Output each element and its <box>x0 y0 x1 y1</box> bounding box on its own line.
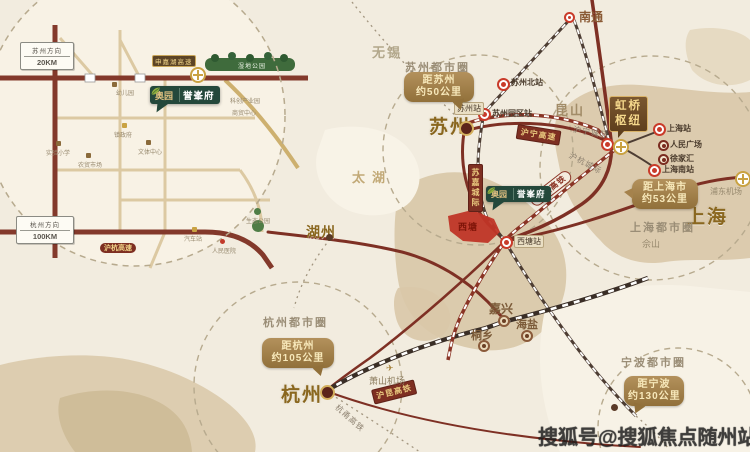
poi-icon <box>86 153 91 158</box>
airport-icon: ✈ <box>386 363 394 374</box>
poi-icon <box>112 82 117 87</box>
hongqiao-hub-badge: 虹桥 枢纽 <box>609 96 648 132</box>
station-pudong-airport: 浦东机场 <box>710 186 742 197</box>
poi-label: 文体中心 <box>138 147 162 156</box>
road-sign-distance: 20KM <box>24 56 70 67</box>
poi-icon <box>192 227 197 232</box>
road-sign-text: 杭州方向 <box>20 219 70 229</box>
node-pudong <box>735 171 750 187</box>
poi-label: 农贸市场 <box>78 160 102 169</box>
expressway-name-tag: 申嘉湖高速 <box>152 55 196 67</box>
callout-line2: 约50公里 <box>408 87 470 99</box>
interchange-icon <box>190 67 206 83</box>
city-node-huzhou <box>326 234 333 241</box>
road-sign-suzhou: 苏州方向 20KM <box>20 42 74 70</box>
airport-xiaoshan: 萧山机场 <box>369 374 405 387</box>
project-logo-callout-inset: 奥园 誉峯府 <box>150 86 220 104</box>
poi-label: 汽车站 <box>184 234 202 243</box>
poi-label: 商贸中心 <box>232 108 256 117</box>
divider <box>179 88 180 102</box>
poi-icon <box>122 123 127 128</box>
poi-marker <box>658 140 669 151</box>
node-ningbo-line <box>611 404 618 411</box>
expressway-pill: 沪杭高速 <box>100 243 136 253</box>
metro-label-ningbo: 宁波都市圈 <box>621 354 686 370</box>
poi-label: 人民医院 <box>212 246 236 255</box>
callout-line1: 距苏州 <box>408 75 470 87</box>
poi-peoples-square: 人民广场 <box>670 139 702 150</box>
station-shanghai: 上海站 <box>667 123 691 134</box>
city-kunshan: 昆山 <box>555 100 585 119</box>
poi-icon <box>56 141 61 146</box>
location-map: 苏州方向 20KM 杭州方向 100KM 申嘉湖高速 沪杭高速 湿地公园 奥园 … <box>0 0 750 452</box>
city-hangzhou: 杭州 <box>281 380 323 407</box>
city-node-suzhou <box>459 121 474 136</box>
callout-shanghai-distance: 距上海市 约53公里 <box>632 179 698 209</box>
project-name: 誉峯府 <box>183 88 215 102</box>
city-wuxi: 无锡 <box>372 42 402 61</box>
callout-suzhou-distance: 距苏州 约50公里 <box>404 72 474 102</box>
station-marker-nantong <box>564 12 575 23</box>
station-marker-xitang <box>500 236 513 249</box>
callout-line2: 约130公里 <box>628 391 680 403</box>
road-sign-text: 苏州方向 <box>24 45 70 55</box>
road-sign-hangzhou: 杭州方向 100KM <box>16 216 74 244</box>
hub-node-hongqiao <box>613 139 629 155</box>
hub-line2: 枢纽 <box>615 114 642 129</box>
watermark: 搜狐号@搜狐焦点随州站 <box>538 421 750 450</box>
hub-line1: 虹桥 <box>615 99 642 114</box>
poi-label: 实验小学 <box>46 148 70 157</box>
station-suzhou-north: 苏州北站 <box>511 77 543 88</box>
county-dot-tongxiang <box>478 340 490 352</box>
rail-label-sujia: 苏嘉城际 <box>468 164 483 212</box>
callout-line1: 距杭州 <box>266 341 330 353</box>
poi-label: 生态公园 <box>246 216 270 225</box>
station-marker <box>653 123 666 136</box>
callout-line2: 约53公里 <box>636 194 694 206</box>
station-marker <box>497 78 510 91</box>
metro-label-shanghai: 上海都市圈 <box>630 219 695 235</box>
county-dot-jiaxing <box>498 315 510 327</box>
project-name: 誉峯府 <box>517 188 546 200</box>
lake-taihu: 太湖 <box>352 167 392 186</box>
callout-line2: 约105公里 <box>266 353 330 365</box>
divider <box>513 188 514 200</box>
place-sheshan: 佘山 <box>642 237 660 250</box>
park-icon <box>254 208 261 215</box>
callout-line1: 距宁波 <box>628 379 680 391</box>
station-shanghai-south: 上海南站 <box>662 164 694 175</box>
poi-label: 科创产业园 <box>230 96 260 105</box>
inset-street-map: 苏州方向 20KM 杭州方向 100KM 申嘉湖高速 沪杭高速 湿地公园 奥园 … <box>0 0 312 272</box>
metro-label-hangzhou: 杭州都市圈 <box>263 314 328 330</box>
poi-label: 幼儿园 <box>116 88 134 97</box>
callout-ningbo-distance: 距宁波 约130公里 <box>624 376 684 406</box>
station-suzhou-park: 苏州园区站 <box>492 108 532 119</box>
park-label: 湿地公园 <box>238 61 266 70</box>
poi-xujiahui: 徐家汇 <box>670 153 694 164</box>
callout-hangzhou-distance: 距杭州 约105公里 <box>262 338 334 368</box>
project-logo-callout: 奥园 誉峯府 <box>486 186 551 202</box>
hospital-icon <box>220 239 225 244</box>
poi-label: 镇政府 <box>114 130 132 139</box>
station-xitang: 西塘站 <box>514 235 544 248</box>
city-node-hangzhou <box>320 385 335 400</box>
county-dot-haiyan <box>521 330 533 342</box>
station-marker <box>648 164 661 177</box>
poi-icon <box>146 140 151 145</box>
callout-line1: 距上海市 <box>636 182 694 194</box>
road-sign-distance: 100KM <box>20 230 70 241</box>
project-town-xitang: 西塘 <box>458 220 478 233</box>
city-nantong: 南通 <box>579 8 603 25</box>
